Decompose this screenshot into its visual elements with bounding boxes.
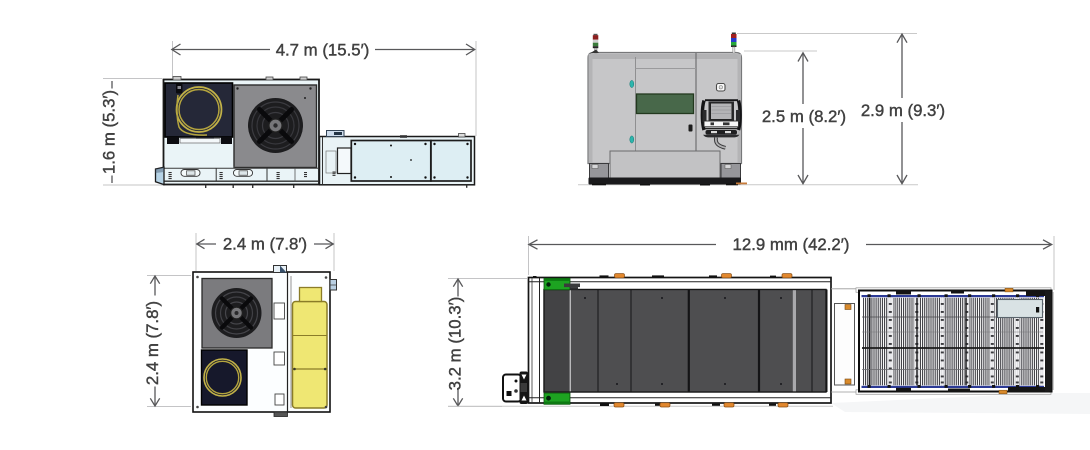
svg-text:12.9 mm (42.2′): 12.9 mm (42.2′) — [733, 235, 850, 254]
svg-text:3.2 m (10.3′): 3.2 m (10.3′) — [446, 297, 465, 391]
svg-text:2.4 m (7.8′): 2.4 m (7.8′) — [143, 301, 162, 385]
svg-text:2.9 m (9.3′): 2.9 m (9.3′) — [861, 101, 945, 120]
svg-text:2.5 m (8.2′): 2.5 m (8.2′) — [762, 107, 846, 126]
svg-text:2.4 m (7.8′): 2.4 m (7.8′) — [223, 235, 307, 254]
svg-text:4.7 m (15.5′): 4.7 m (15.5′) — [276, 41, 370, 60]
svg-text:1.6 m (5.3′): 1.6 m (5.3′) — [100, 90, 119, 174]
